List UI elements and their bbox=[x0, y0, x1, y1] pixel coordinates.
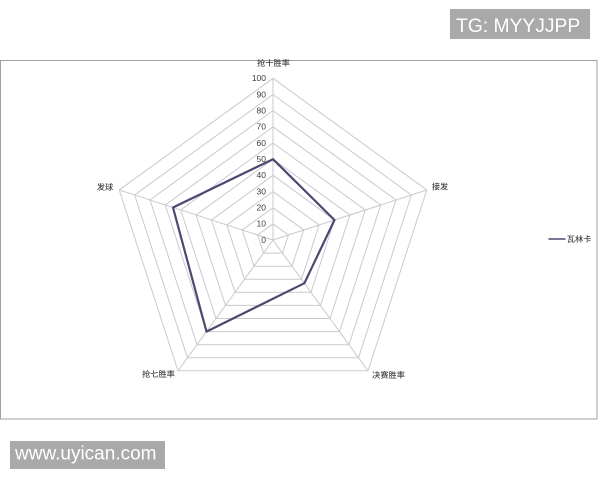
svg-text:www.uyican.com: www.uyican.com bbox=[14, 444, 157, 465]
svg-text:80: 80 bbox=[257, 106, 267, 116]
svg-text:0: 0 bbox=[261, 235, 266, 245]
svg-text:20: 20 bbox=[257, 203, 267, 213]
svg-text:60: 60 bbox=[257, 138, 267, 148]
svg-text:TG: MYYJJPP: TG: MYYJJPP bbox=[456, 16, 580, 37]
svg-text:10: 10 bbox=[257, 219, 267, 229]
svg-text:30: 30 bbox=[257, 186, 267, 196]
svg-text:70: 70 bbox=[257, 122, 267, 132]
svg-text:40: 40 bbox=[257, 170, 267, 180]
svg-text:50: 50 bbox=[257, 154, 267, 164]
svg-text:100: 100 bbox=[252, 73, 266, 83]
svg-text:90: 90 bbox=[257, 89, 267, 99]
